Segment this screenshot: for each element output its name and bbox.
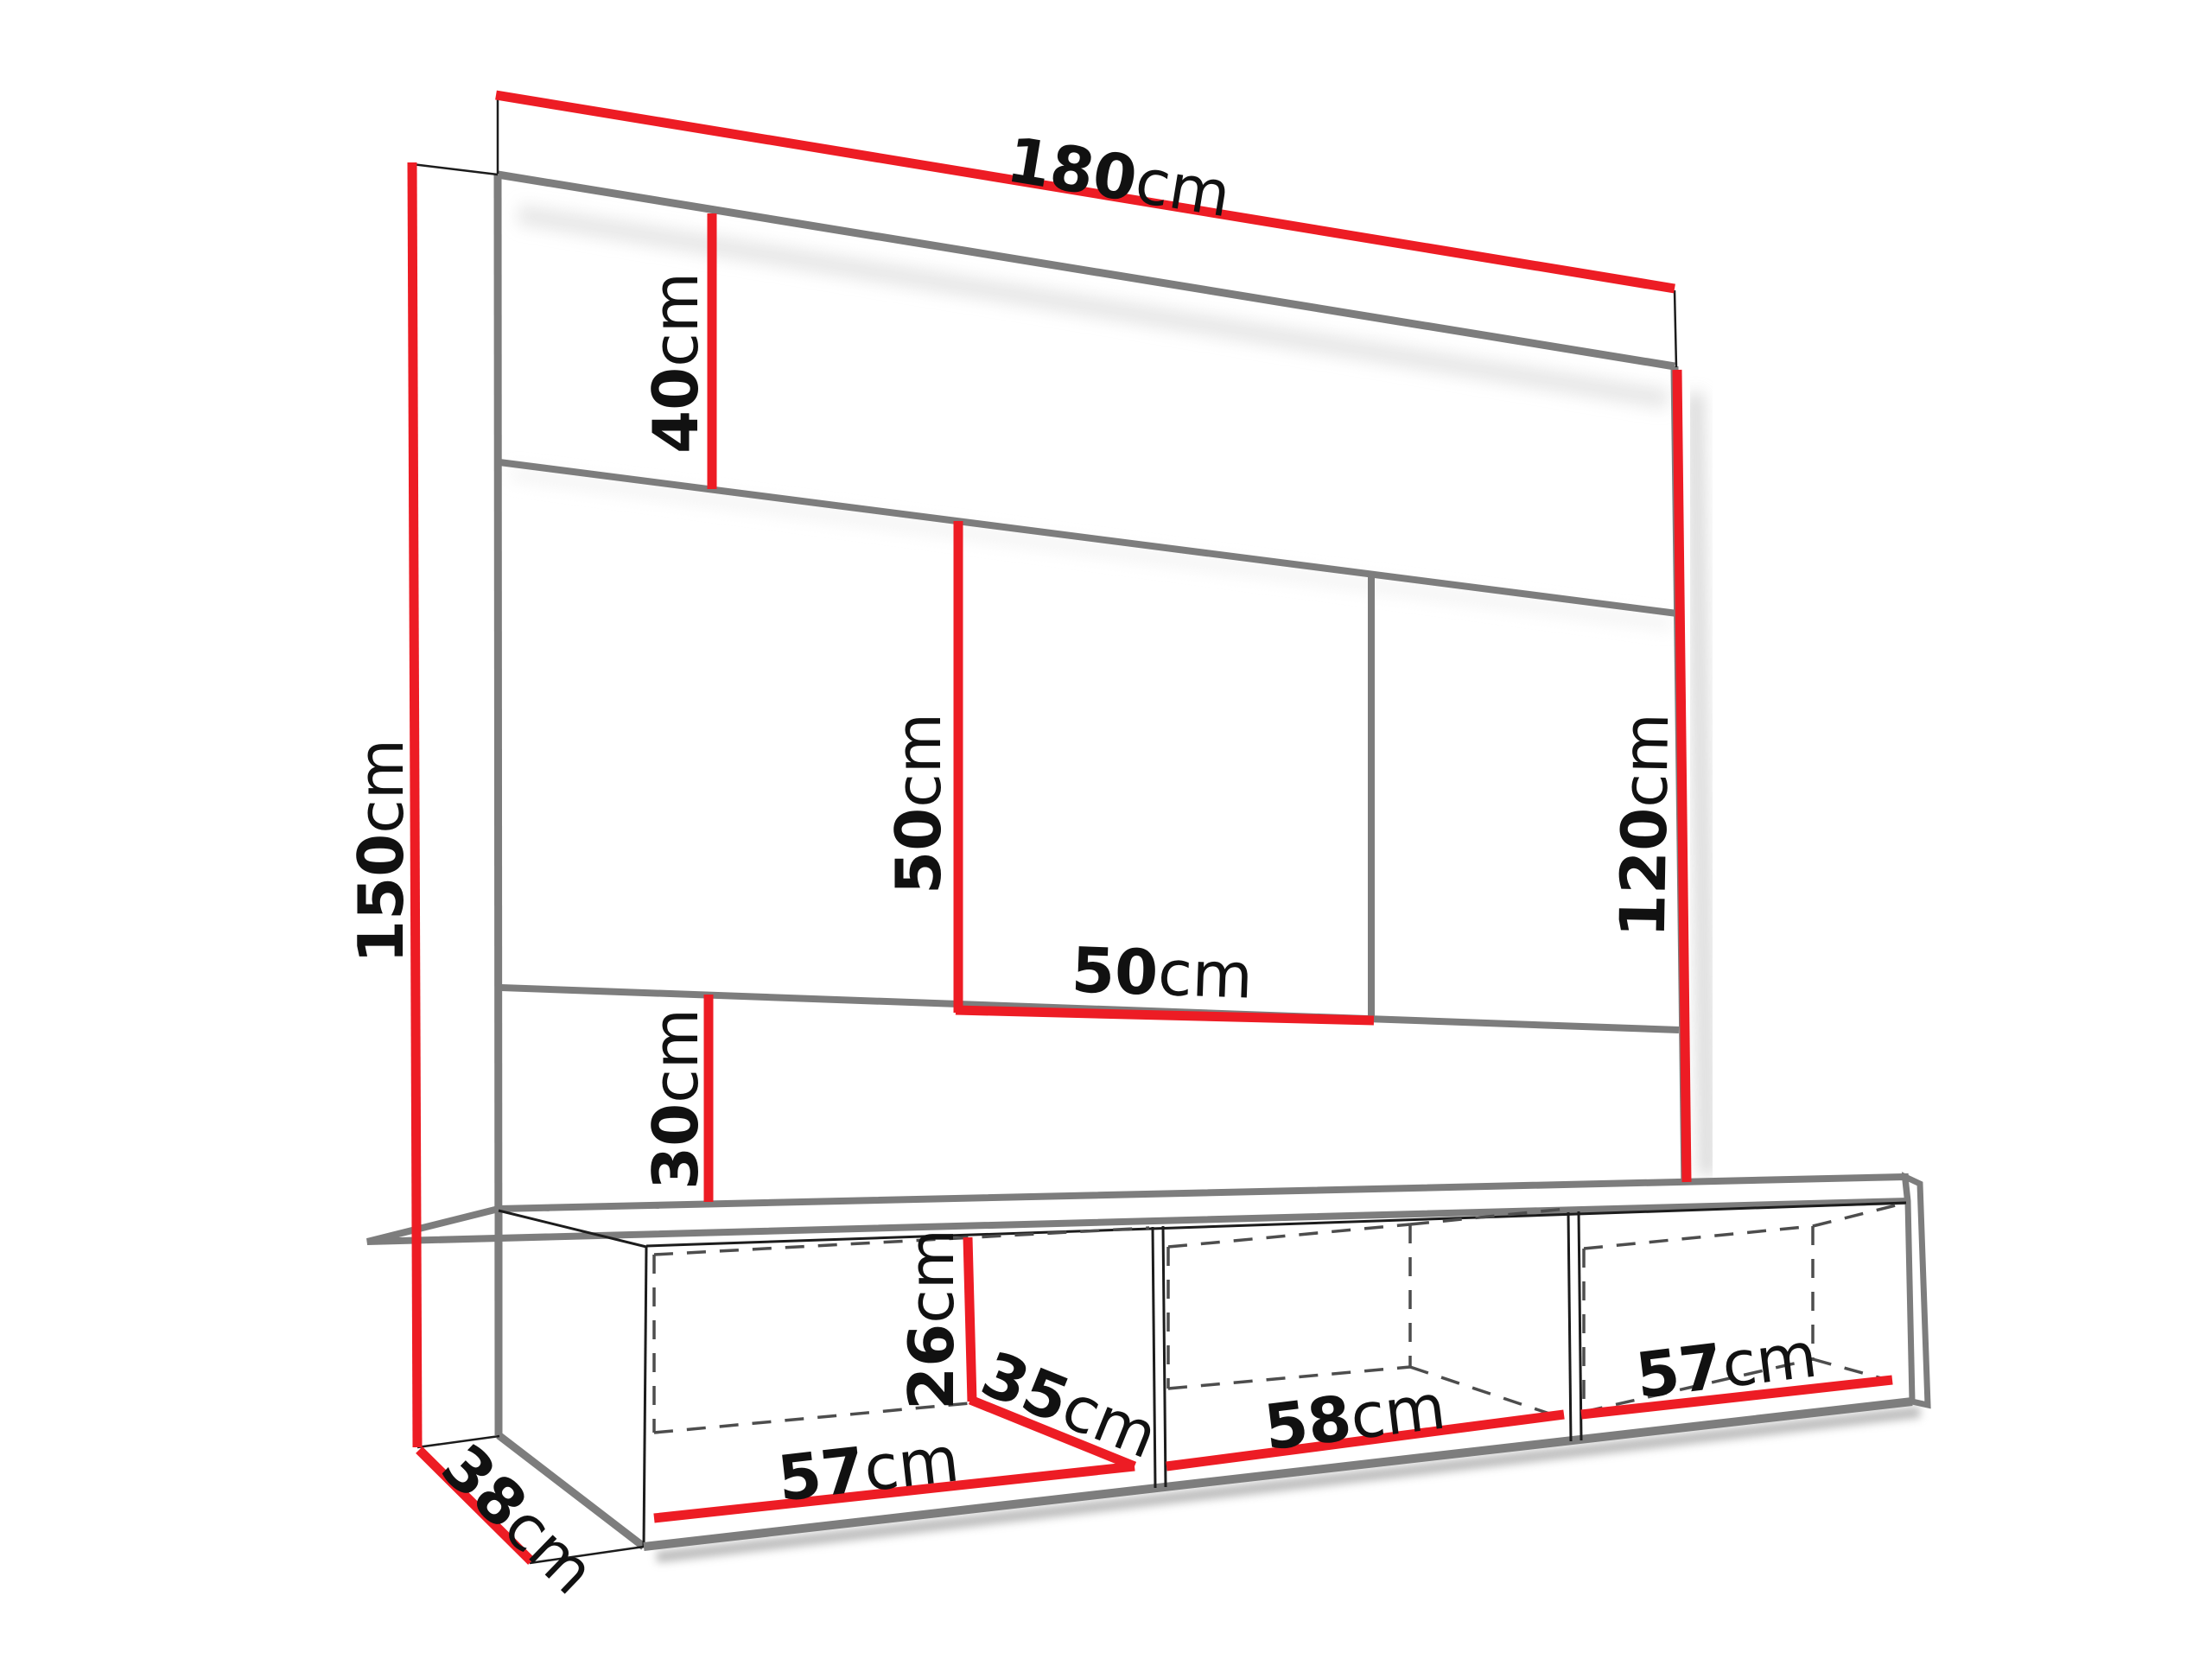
label-lower-gap: 30cm xyxy=(639,1008,712,1190)
cabinet-top-surface xyxy=(367,1177,1908,1242)
panel-right-edge-shadow xyxy=(1695,393,1707,1175)
label-header-height: 40cm xyxy=(639,272,712,454)
comp3-back-top-dashed xyxy=(1584,1226,1813,1249)
label-top-width: 180cm xyxy=(1002,124,1236,232)
label-inner-height: 26cm xyxy=(895,1229,968,1410)
label-niche-width: 50cm xyxy=(1071,933,1255,1012)
ext-width-right xyxy=(1675,290,1676,367)
label-comp1-width: 57cm xyxy=(774,1422,963,1515)
comp3-top-diagonal-dashed xyxy=(1813,1204,1903,1226)
divider-a-right xyxy=(1163,1226,1166,1487)
divider1-shadow xyxy=(512,474,1672,624)
label-niche-height: 50cm xyxy=(882,713,955,894)
cabinet-right-face xyxy=(1905,1177,1928,1405)
label-comp2-width: 58cm xyxy=(1261,1370,1450,1465)
extension-lines xyxy=(412,93,1676,1563)
dim-line-niche-width-50 xyxy=(956,1010,1374,1020)
ext-height-top xyxy=(412,164,498,175)
panel-divider-upper xyxy=(499,462,1677,613)
divider-b-left xyxy=(1568,1212,1571,1441)
divider-a-left xyxy=(1153,1227,1155,1488)
label-inner-depth: 35cm xyxy=(972,1338,1167,1473)
label-total-height: 150cm xyxy=(345,739,417,963)
dim-line-inner-height-26 xyxy=(968,1237,972,1402)
label-right-height: 120cm xyxy=(1606,712,1683,938)
dimension-labels: 180cm 40cm 150cm 50cm 50cm 120cm 30cm 26… xyxy=(345,124,1821,1609)
label-cabinet-depth: 38cm xyxy=(428,1430,608,1608)
cabinet-front-left-edge xyxy=(644,1246,646,1547)
furniture-dimension-diagram: 180cm 40cm 150cm 50cm 50cm 120cm 30cm 26… xyxy=(0,0,2212,1659)
divider-b-right xyxy=(1579,1211,1581,1440)
label-comp3-width: 57cm xyxy=(1632,1319,1821,1413)
